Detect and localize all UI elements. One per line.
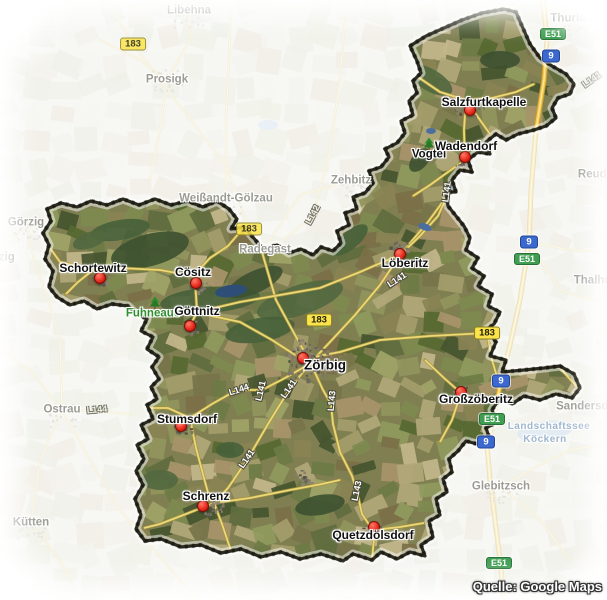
nature-label: Fuhneaue (126, 308, 180, 320)
e-road-badge: E51 (486, 557, 512, 569)
town-label: Stumsdorf (157, 413, 217, 425)
faded-town-label: Weißandt-Gölzau (179, 193, 273, 205)
road-label: L143 (327, 390, 338, 411)
e-road-badge: E51 (514, 253, 540, 265)
road-label: L142 (304, 204, 322, 226)
road-label: L144 (86, 405, 107, 416)
town-label: Salzfurtkapelle (442, 96, 527, 108)
lake-label: Landschaftssee (508, 422, 591, 432)
faded-town-label: Thalheim (574, 275, 607, 287)
map-label-layer: LibehnaProsigkWeißandt-GölzauZehbitzRade… (0, 0, 607, 600)
town-label: Göttnitz (174, 305, 219, 317)
town-label: Wadendorf (435, 140, 497, 152)
faded-town-label: Radegast (239, 244, 291, 256)
faded-town-label: Glebitzsch (472, 481, 530, 493)
road-label: L141 (237, 448, 256, 470)
town-label: Schrenz (183, 490, 230, 502)
town-label: Zörbig (304, 358, 346, 372)
town-label: Großzöberitz (439, 393, 513, 405)
faded-town-label: Reuden (578, 169, 607, 181)
faded-town-label: Ostrau (43, 404, 80, 416)
town-label: Löberitz (382, 257, 429, 269)
map-credit: Quelle: Google Maps (473, 579, 602, 594)
town-label: Cösitz (175, 266, 211, 278)
road-label: L141 (581, 70, 603, 89)
town-label: Quetzdölsdorf (332, 529, 413, 541)
faded-town-label: Libehna (167, 5, 211, 17)
road-label: L141 (254, 380, 267, 402)
lake-label: Köckern (523, 435, 567, 445)
road-label: L141 (279, 378, 298, 400)
e-road-badge: E51 (540, 28, 566, 40)
autobahn-badge: 9 (520, 236, 538, 249)
autobahn-badge: 9 (492, 375, 510, 388)
road-label: L143 (350, 480, 363, 502)
road-label: L141 (386, 271, 408, 290)
faded-town-label: Görzig (8, 217, 44, 229)
faded-town-label: Prosigk (146, 74, 188, 86)
faded-town-label: Sandersdorf (556, 401, 607, 413)
road-label: L144 (228, 383, 250, 398)
map-canvas[interactable]: LibehnaProsigkWeißandt-GölzauZehbitzRade… (0, 0, 607, 600)
faded-town-label: Kütten (13, 517, 49, 529)
town-label: Schortewitz (59, 262, 126, 274)
road-label: L141 (441, 181, 452, 202)
faded-town-label: Thurland (550, 13, 599, 25)
town-marker[interactable] (184, 320, 196, 332)
faded-town-label: Zehbitz (331, 175, 371, 187)
e-road-badge: E51 (479, 413, 505, 425)
faded-town-label: Glauzig (0, 252, 15, 264)
b-road-badge: 183 (474, 327, 500, 340)
autobahn-badge: 9 (477, 436, 495, 449)
b-road-badge: 183 (306, 314, 332, 327)
b-road-badge: 183 (120, 38, 146, 51)
b-road-badge: 183 (236, 223, 262, 236)
autobahn-badge: 9 (542, 50, 560, 63)
